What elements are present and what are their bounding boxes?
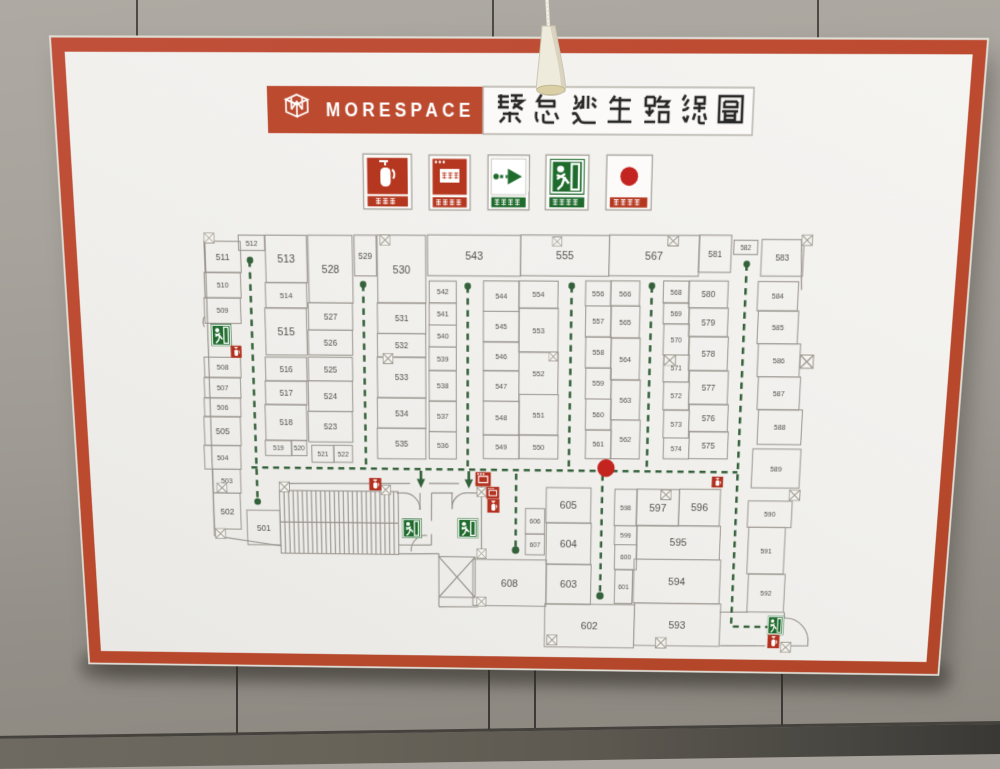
svg-text:590: 590 bbox=[764, 510, 777, 518]
svg-text:515: 515 bbox=[277, 327, 295, 339]
svg-text:570: 570 bbox=[670, 335, 682, 344]
svg-text:602: 602 bbox=[581, 621, 598, 632]
svg-text:587: 587 bbox=[773, 389, 785, 398]
svg-text:563: 563 bbox=[619, 396, 631, 405]
svg-text:524: 524 bbox=[324, 392, 338, 402]
svg-text:520: 520 bbox=[294, 444, 305, 452]
svg-text:600: 600 bbox=[620, 553, 631, 561]
svg-text:530: 530 bbox=[393, 264, 411, 276]
svg-text:545: 545 bbox=[495, 322, 508, 331]
svg-text:513: 513 bbox=[277, 254, 295, 266]
svg-text:606: 606 bbox=[530, 517, 541, 525]
svg-text:523: 523 bbox=[324, 422, 338, 431]
svg-text:541: 541 bbox=[437, 310, 449, 319]
svg-text:577: 577 bbox=[701, 383, 715, 393]
svg-text:598: 598 bbox=[620, 503, 631, 511]
svg-text:553: 553 bbox=[533, 326, 545, 335]
svg-text:581: 581 bbox=[708, 249, 722, 259]
svg-text:509: 509 bbox=[216, 307, 228, 316]
svg-text:504: 504 bbox=[217, 453, 229, 461]
svg-text:591: 591 bbox=[760, 547, 772, 555]
svg-text:594: 594 bbox=[668, 577, 686, 588]
svg-text:507: 507 bbox=[217, 384, 229, 393]
svg-text:512: 512 bbox=[245, 239, 257, 248]
svg-text:583: 583 bbox=[775, 253, 789, 263]
svg-text:576: 576 bbox=[701, 413, 715, 423]
svg-text:582: 582 bbox=[740, 245, 751, 252]
svg-text:506: 506 bbox=[217, 403, 229, 412]
svg-text:592: 592 bbox=[760, 589, 772, 597]
svg-text:548: 548 bbox=[495, 414, 507, 423]
svg-text:597: 597 bbox=[649, 503, 666, 514]
svg-text:508: 508 bbox=[217, 363, 229, 372]
svg-text:558: 558 bbox=[592, 348, 604, 357]
svg-text:542: 542 bbox=[437, 288, 449, 297]
svg-text:519: 519 bbox=[273, 444, 284, 452]
svg-text:575: 575 bbox=[701, 441, 715, 450]
svg-text:569: 569 bbox=[670, 309, 682, 318]
svg-text:595: 595 bbox=[670, 538, 687, 549]
svg-text:533: 533 bbox=[395, 373, 409, 383]
svg-text:525: 525 bbox=[324, 364, 338, 374]
svg-text:518: 518 bbox=[279, 418, 293, 427]
svg-text:579: 579 bbox=[701, 318, 715, 328]
svg-text:585: 585 bbox=[772, 323, 785, 332]
svg-text:560: 560 bbox=[592, 410, 605, 419]
svg-text:543: 543 bbox=[465, 251, 483, 263]
svg-text:578: 578 bbox=[701, 349, 715, 359]
svg-text:534: 534 bbox=[395, 408, 408, 417]
svg-text:601: 601 bbox=[618, 583, 629, 591]
svg-text:568: 568 bbox=[670, 288, 682, 297]
svg-text:514: 514 bbox=[280, 290, 293, 300]
svg-text:521: 521 bbox=[317, 450, 328, 458]
svg-text:502: 502 bbox=[220, 507, 234, 516]
svg-text:572: 572 bbox=[670, 392, 681, 401]
svg-text:549: 549 bbox=[495, 443, 507, 451]
svg-text:599: 599 bbox=[620, 531, 631, 539]
svg-text:529: 529 bbox=[358, 251, 372, 261]
svg-text:593: 593 bbox=[668, 620, 685, 631]
svg-text:511: 511 bbox=[216, 252, 230, 262]
svg-text:605: 605 bbox=[560, 501, 577, 512]
svg-text:551: 551 bbox=[533, 411, 545, 420]
svg-text:603: 603 bbox=[560, 580, 577, 591]
svg-text:526: 526 bbox=[324, 338, 338, 348]
svg-text:547: 547 bbox=[495, 382, 507, 391]
svg-text:604: 604 bbox=[560, 539, 578, 550]
svg-text:589: 589 bbox=[770, 465, 782, 473]
svg-text:607: 607 bbox=[529, 540, 540, 548]
svg-text:528: 528 bbox=[322, 264, 340, 276]
svg-text:540: 540 bbox=[437, 332, 450, 341]
svg-text:535: 535 bbox=[395, 439, 408, 448]
svg-text:532: 532 bbox=[395, 341, 409, 351]
svg-text:588: 588 bbox=[774, 423, 786, 432]
svg-text:567: 567 bbox=[645, 251, 663, 263]
svg-text:537: 537 bbox=[437, 412, 449, 421]
svg-text:522: 522 bbox=[338, 450, 349, 458]
svg-text:554: 554 bbox=[532, 290, 545, 299]
svg-text:531: 531 bbox=[395, 314, 409, 324]
svg-text:556: 556 bbox=[592, 289, 604, 298]
svg-text:536: 536 bbox=[437, 441, 449, 449]
svg-text:596: 596 bbox=[691, 503, 709, 514]
svg-text:544: 544 bbox=[495, 292, 508, 301]
svg-text:546: 546 bbox=[495, 352, 507, 361]
svg-text:573: 573 bbox=[670, 420, 681, 429]
svg-text:562: 562 bbox=[619, 435, 631, 444]
svg-text:538: 538 bbox=[437, 382, 449, 391]
svg-text:501: 501 bbox=[257, 523, 271, 532]
svg-text:552: 552 bbox=[533, 369, 545, 378]
svg-text:539: 539 bbox=[437, 355, 449, 364]
svg-text:527: 527 bbox=[324, 312, 338, 322]
svg-text:586: 586 bbox=[773, 356, 785, 365]
svg-text:510: 510 bbox=[217, 281, 230, 290]
svg-text:561: 561 bbox=[592, 440, 604, 448]
svg-text:559: 559 bbox=[592, 379, 604, 388]
svg-text:580: 580 bbox=[701, 290, 715, 300]
svg-text:505: 505 bbox=[215, 427, 229, 436]
svg-text:608: 608 bbox=[501, 578, 518, 589]
svg-text:557: 557 bbox=[592, 317, 604, 326]
svg-text:566: 566 bbox=[619, 289, 631, 298]
svg-text:564: 564 bbox=[619, 355, 632, 364]
svg-text:MORESPACE: MORESPACE bbox=[326, 99, 475, 121]
svg-text:550: 550 bbox=[533, 443, 545, 451]
svg-text:517: 517 bbox=[279, 388, 293, 398]
svg-text:516: 516 bbox=[279, 364, 293, 374]
svg-text:584: 584 bbox=[772, 292, 785, 301]
svg-text:555: 555 bbox=[556, 251, 574, 263]
svg-text:574: 574 bbox=[670, 444, 681, 452]
svg-text:565: 565 bbox=[619, 318, 632, 327]
